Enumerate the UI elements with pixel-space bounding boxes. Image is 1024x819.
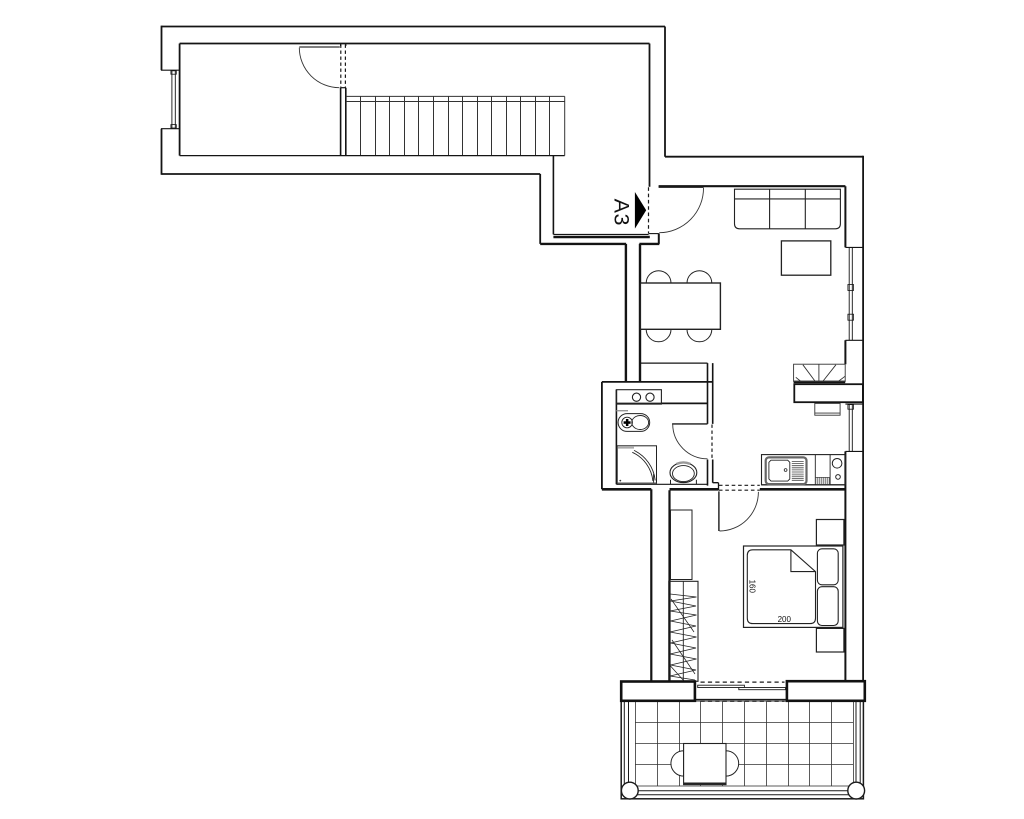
svg-text:160: 160: [747, 580, 756, 594]
svg-text:A3: A3: [610, 199, 634, 226]
svg-text:200: 200: [778, 615, 792, 624]
